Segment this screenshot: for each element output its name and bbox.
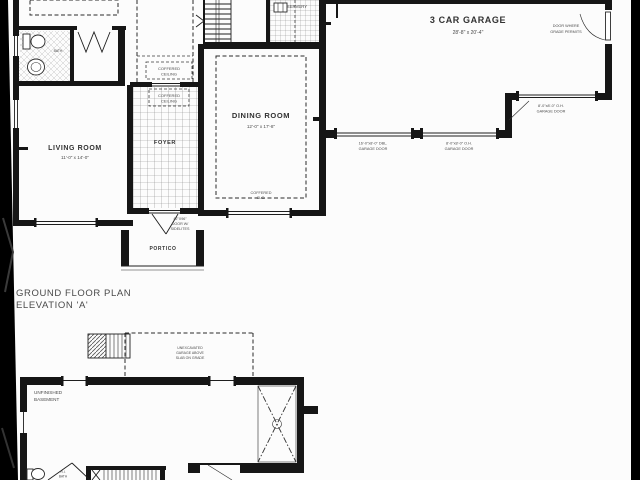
unfinished-basement-label-1: UNFINISHED (34, 390, 63, 395)
coffered-dining-note-2: CLG. (257, 196, 266, 200)
garage-dims: 28'-8" x 20'-4" (453, 30, 484, 36)
unexcavated-note-2: GARAGE ABOVE (176, 351, 204, 355)
servery-label: SERVERY (287, 4, 308, 9)
garage-label: 3 CAR GARAGE (430, 15, 506, 25)
garage-door-single-opening (420, 128, 499, 139)
plan-title-line1: GROUND FLOOR PLAN (16, 288, 131, 299)
rough-in-note-2: BATH (59, 475, 68, 479)
plan-title-line2: ELEVATION 'A' (16, 300, 88, 311)
garage-door-double-opening (334, 128, 414, 139)
unexcavated-note-3: SLAB ON GRADE (176, 356, 205, 360)
living-room-label: LIVING ROOM (48, 145, 102, 152)
unfinished-basement-label-2: BASEMENT (34, 397, 59, 402)
garage-door-double-note-2: GARAGE DOOR (359, 147, 388, 151)
toilet-icon (23, 34, 45, 49)
cased-opening (152, 82, 180, 87)
bath-label: BATH (54, 49, 63, 53)
grade-door-note-1: DOOR WHERE (553, 24, 580, 28)
garage-door-double-note-1: 16'-0"x8'-0" DBL. (359, 142, 388, 146)
front-door-note-1: 42"X96" (173, 217, 187, 221)
rough-in-note-1: R.I. (61, 470, 66, 474)
garage-door-side-note-2: GARAGE DOOR (537, 110, 566, 114)
portico-label: PORTICO (150, 246, 177, 252)
front-door-note-2: DOOR W/ (172, 222, 190, 226)
grade-door-note-2: GRADE PERMITS (550, 30, 582, 34)
coffered-dining-note-1: COFFERED (251, 191, 272, 195)
front-door-note-3: SIDELITES (171, 227, 190, 231)
foyer-label: FOYER (154, 140, 176, 146)
scanned-floor-plan-page: LIVING ROOM 11'-0" x 14'-0" DINING ROOM … (0, 0, 640, 480)
garage-door-single-note-2: GARAGE DOOR (445, 147, 474, 151)
foyer-tile-floor (133, 87, 198, 208)
unexcavated-note-1: UNEXCAVATED (177, 346, 203, 350)
floor-plan-drawing: LIVING ROOM 11'-0" x 14'-0" DINING ROOM … (0, 0, 640, 480)
dining-room-dims: 12'-0" x 17'-8" (247, 124, 276, 129)
garage-door-single-note-1: 8'-0"x8'-0" O.H. (446, 142, 472, 146)
coffered-hall-note-1: COFFERED (158, 66, 180, 71)
scan-margin-artifacts (2, 218, 14, 468)
garage-door-side-note-1: 8'-0"x8'-0" O.H. (538, 104, 564, 108)
coffered-hall-note-2: CEILING (161, 72, 177, 77)
sink-icon (28, 59, 45, 75)
dining-room-label: DINING ROOM (232, 111, 290, 120)
coffered-foyer-note-2: CEILING (161, 99, 177, 104)
coffered-foyer-note-1: COFFERED (158, 93, 180, 98)
living-room-dims: 11'-0" x 14'-0" (61, 155, 89, 160)
